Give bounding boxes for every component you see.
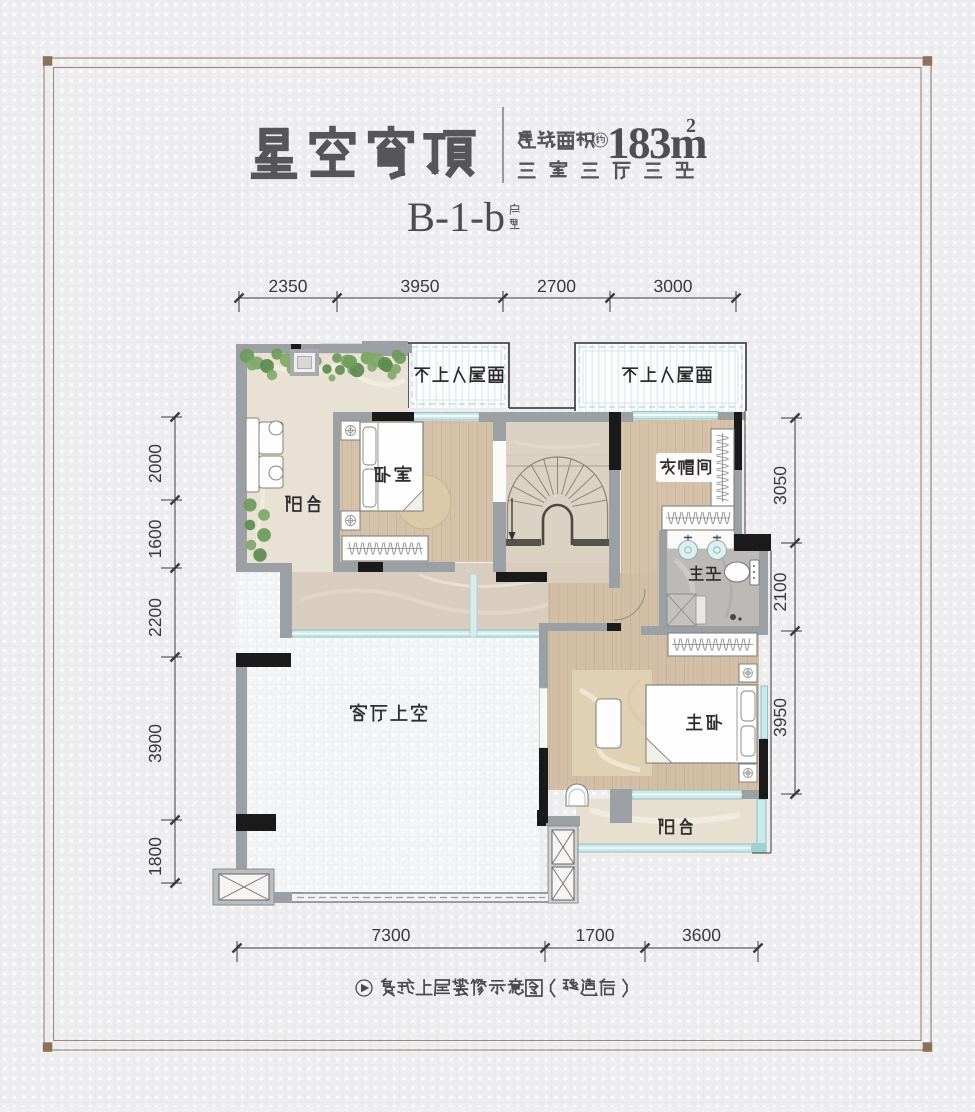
svg-text:1800: 1800 (145, 837, 165, 876)
svg-text:3950: 3950 (401, 276, 440, 296)
svg-text:3900: 3900 (145, 724, 165, 763)
svg-text:2350: 2350 (269, 276, 308, 296)
svg-text:1700: 1700 (576, 925, 615, 945)
svg-text:3600: 3600 (682, 925, 721, 945)
svg-text:2700: 2700 (537, 276, 576, 296)
svg-text:2: 2 (686, 115, 696, 137)
svg-text:B-1-b: B-1-b (407, 195, 505, 241)
svg-text:3000: 3000 (654, 276, 693, 296)
svg-text:2200: 2200 (145, 598, 165, 637)
svg-text:2000: 2000 (145, 444, 165, 483)
svg-text:3950: 3950 (770, 698, 790, 737)
svg-text:1600: 1600 (145, 519, 165, 558)
svg-text:2100: 2100 (770, 572, 790, 611)
svg-text:3050: 3050 (770, 466, 790, 505)
svg-text:7300: 7300 (372, 925, 411, 945)
